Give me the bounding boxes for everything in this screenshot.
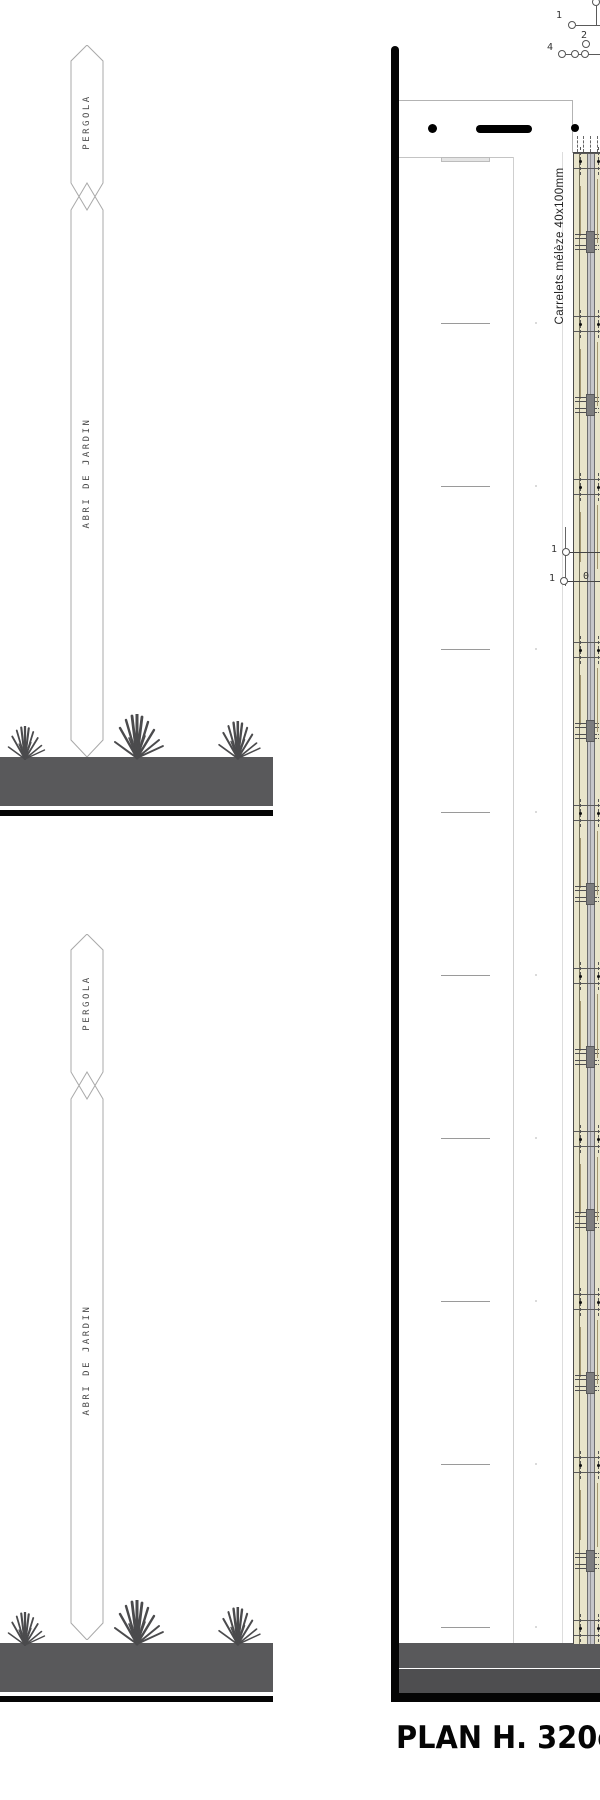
block-bolt-dotted (595, 1216, 600, 1217)
screw-row-line (574, 479, 600, 480)
block-bolt-line (575, 1568, 586, 1569)
callout-number: 1 (549, 574, 555, 584)
block-bolt-dotted (595, 738, 600, 739)
block-bolt-line (575, 890, 586, 891)
grain-line (580, 675, 581, 725)
screw-head-dot (579, 975, 582, 978)
grain-line (597, 505, 598, 569)
block-bolt-dotted (595, 1212, 600, 1213)
screw-row-line (574, 983, 600, 984)
screw-head-dot (597, 1138, 600, 1141)
panel-joint-dash (441, 975, 490, 976)
block-bolt-line (575, 897, 586, 898)
axis-stub-dashed (590, 136, 591, 152)
block-bolt-line (575, 408, 586, 409)
screw-row-line (574, 820, 600, 821)
grass-tuft-icon (4, 1612, 46, 1647)
callout-leader (596, 6, 597, 25)
grain-line (580, 838, 581, 888)
abri-de-jardin-label: ABRI DE JARDIN (81, 393, 93, 553)
screw-row-line (574, 494, 600, 495)
grass-tuft-icon (214, 1607, 262, 1646)
callout-number: 0 (583, 572, 589, 582)
screw-row-line (574, 168, 600, 169)
grass-tuft-icon (214, 721, 262, 760)
architectural-drawing-canvas: PERGOLA ABRI DE JARDIN PERGOLA ABRI DE J… (0, 0, 600, 1800)
block-bolt-line (575, 234, 586, 235)
screw-row-line (574, 1472, 600, 1473)
block-bolt-line (575, 245, 586, 246)
screw-head-dot (597, 1627, 600, 1630)
screw-head-dot (579, 323, 582, 326)
block-bolt-dotted (595, 412, 600, 413)
handle-bar (476, 125, 532, 133)
callout-circle (582, 40, 590, 48)
screw-row-line (574, 968, 600, 969)
axis-stub-dashed (577, 136, 578, 152)
screw-row-line (574, 1635, 600, 1636)
screw-head-dot (579, 160, 582, 163)
screw-head-dot (597, 975, 600, 978)
block-bolt-dotted (595, 249, 600, 250)
panel-joint-dot (535, 1300, 537, 1302)
block-bolt-dotted (595, 723, 600, 724)
panel-joint-dot (535, 1463, 537, 1465)
grain-line (580, 349, 581, 399)
ground-band (0, 1643, 273, 1692)
panel-joint-dot (535, 974, 537, 976)
panel-joint-dash (441, 1464, 490, 1465)
block-bolt-dotted (595, 1049, 600, 1050)
cladding-column (573, 152, 600, 1644)
screw-row-line (574, 153, 600, 154)
axis-stub-dashed (583, 136, 584, 152)
grass-tuft-icon (4, 726, 46, 761)
panel-joint-dot (535, 322, 537, 324)
block-bolt-dotted (595, 1375, 600, 1376)
panel-joint-dot (535, 648, 537, 650)
grain-line (580, 1327, 581, 1377)
screw-head-dot (597, 649, 600, 652)
connector-block (586, 1550, 595, 1572)
panel-joint-dash (441, 649, 490, 650)
panel-joint-dot (535, 1137, 537, 1139)
connector-block (586, 1209, 595, 1231)
callout-number-1: 1 (556, 11, 562, 21)
block-bolt-line (575, 1060, 586, 1061)
fixing-dot-right (571, 124, 579, 132)
screw-row-line (574, 1620, 600, 1621)
block-bolt-line (575, 401, 586, 402)
block-bolt-dotted (595, 238, 600, 239)
block-bolt-dotted (595, 734, 600, 735)
block-bolt-dotted (595, 1227, 600, 1228)
block-bolt-line (575, 238, 586, 239)
block-bolt-dotted (595, 408, 600, 409)
block-bolt-dotted (595, 890, 600, 891)
plan-ground-band (399, 1643, 600, 1668)
screw-row-line (574, 1146, 600, 1147)
block-bolt-line (575, 1386, 586, 1387)
callout-number-4: 4 (547, 43, 553, 53)
grain-line (580, 186, 581, 236)
block-bolt-dotted (595, 1390, 600, 1391)
block-bolt-line (575, 1064, 586, 1065)
block-bolt-line (575, 1557, 586, 1558)
screw-head-dot (597, 160, 600, 163)
block-bolt-line (575, 249, 586, 250)
block-bolt-dotted (595, 1053, 600, 1054)
pergola-label: PERGOLA (81, 62, 93, 182)
grain-line (580, 512, 581, 562)
screw-row-line (574, 1131, 600, 1132)
block-bolt-dotted (595, 886, 600, 887)
panel-joint-dot (535, 485, 537, 487)
connector-block (586, 1372, 595, 1394)
grass-tuft-icon (109, 1600, 165, 1646)
callout-circle (581, 50, 589, 58)
callout-leader (576, 25, 600, 26)
block-bolt-dotted (595, 1557, 600, 1558)
block-bolt-line (575, 1216, 586, 1217)
grain-line (580, 1490, 581, 1540)
block-bolt-dotted (595, 901, 600, 902)
screw-head-dot (579, 486, 582, 489)
block-bolt-line (575, 397, 586, 398)
panel-joint-dash (441, 1301, 490, 1302)
block-bolt-dotted (595, 1564, 600, 1565)
ground-baseline (0, 1696, 273, 1702)
block-bolt-line (575, 1390, 586, 1391)
callout-circle (560, 577, 568, 585)
block-bolt-line (575, 1375, 586, 1376)
connector-block (586, 720, 595, 742)
block-bolt-line (575, 1053, 586, 1054)
screw-head-dot (597, 486, 600, 489)
fixing-dot-left (428, 124, 437, 133)
plan-title: PLAN H. 320cm _ P (396, 1720, 600, 1756)
screw-head-dot (579, 649, 582, 652)
cladding-back-line (562, 152, 563, 1643)
block-bolt-dotted (595, 1553, 600, 1554)
block-bolt-line (575, 1223, 586, 1224)
connector-block (586, 394, 595, 416)
block-bolt-line (575, 901, 586, 902)
callout-circle (568, 21, 576, 29)
callout-circle (558, 50, 566, 58)
panel-joint-dot (535, 1626, 537, 1628)
screw-head-dot (597, 1301, 600, 1304)
block-bolt-dotted (595, 397, 600, 398)
block-bolt-line (575, 1564, 586, 1565)
screw-head-dot (597, 1464, 600, 1467)
sheet-outer-top-line (399, 100, 572, 101)
panel-joint-dash (441, 1627, 490, 1628)
screw-row-line (574, 316, 600, 317)
block-bolt-dotted (595, 401, 600, 402)
screw-row-line (574, 642, 600, 643)
panel-joint-dash (441, 1138, 490, 1139)
block-bolt-dotted (595, 1060, 600, 1061)
screw-row-line (574, 657, 600, 658)
ground-baseline (0, 810, 273, 816)
screw-row-line (574, 1309, 600, 1310)
sheet-inner-right-line (513, 157, 514, 1643)
screw-head-dot (579, 812, 582, 815)
block-bolt-line (575, 886, 586, 887)
screw-row-line (574, 1294, 600, 1295)
screw-row-line (574, 331, 600, 332)
grain-line (580, 1164, 581, 1214)
block-bolt-dotted (595, 234, 600, 235)
block-bolt-line (575, 1227, 586, 1228)
ground-band (0, 757, 273, 806)
block-bolt-line (575, 1212, 586, 1213)
callout-circle (562, 548, 570, 556)
grain-line (580, 1001, 581, 1051)
block-bolt-dotted (595, 1064, 600, 1065)
block-bolt-line (575, 738, 586, 739)
abri-de-jardin-label: ABRI DE JARDIN (81, 1280, 93, 1440)
screw-head-dot (579, 1464, 582, 1467)
wall-cut-bar (391, 46, 399, 1702)
pergola-label: PERGOLA (81, 943, 93, 1063)
panel-joint-dash (441, 486, 490, 487)
block-bolt-line (575, 723, 586, 724)
lintel-mark (441, 157, 490, 162)
callout-circle (571, 50, 579, 58)
block-bolt-line (575, 1553, 586, 1554)
block-bolt-dotted (595, 727, 600, 728)
block-bolt-dotted (595, 1568, 600, 1569)
screw-head-dot (579, 1138, 582, 1141)
block-bolt-line (575, 1049, 586, 1050)
grass-tuft-icon (109, 714, 165, 760)
block-bolt-line (575, 727, 586, 728)
block-bolt-dotted (595, 897, 600, 898)
connector-block (586, 1046, 595, 1068)
screw-head-dot (579, 1627, 582, 1630)
screw-row-line (574, 1457, 600, 1458)
screw-head-dot (597, 323, 600, 326)
block-bolt-dotted (595, 245, 600, 246)
block-bolt-dotted (595, 1386, 600, 1387)
panel-joint-dash (441, 812, 490, 813)
bottom-border-bar (391, 1693, 600, 1702)
plan-ground-band-dark (399, 1669, 600, 1693)
grain-line (597, 1483, 598, 1547)
connector-block (586, 883, 595, 905)
panel-joint-dot (535, 811, 537, 813)
block-bolt-line (575, 1379, 586, 1380)
block-bolt-line (575, 412, 586, 413)
screw-head-dot (579, 1301, 582, 1304)
block-bolt-dotted (595, 1223, 600, 1224)
axis-stub-dashed (597, 136, 598, 152)
block-bolt-line (575, 734, 586, 735)
callout-leader (570, 552, 600, 553)
screw-head-dot (597, 812, 600, 815)
screw-row-line (574, 805, 600, 806)
callout-number: 1 (551, 545, 557, 555)
material-note-label: Carrelets mélèze 40x100mm (554, 151, 566, 341)
connector-block (586, 231, 595, 253)
block-bolt-dotted (595, 1379, 600, 1380)
panel-joint-dash (441, 323, 490, 324)
